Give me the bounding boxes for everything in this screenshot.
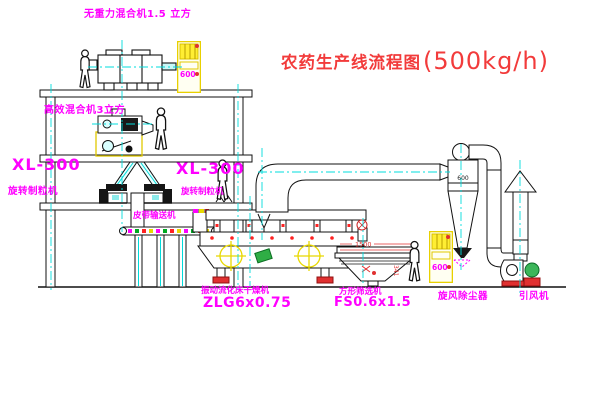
cyclone-diameter-text: 600 [457,175,469,182]
drawing-title: 农药生产线流程图 (500kg/h) [281,47,549,75]
indicator-light-icon [195,44,199,48]
label-granulator-left-model: XL-300 [12,157,81,173]
gravity-free-mixer [88,50,176,90]
sieve-height-dim: 341 [392,265,399,277]
label-mid-mixer: 高效混合机3立方 [44,106,125,116]
granulator-right [144,184,172,203]
label-sieve-model: FS0.6x1.5 [334,296,411,309]
fan-motor-icon [525,263,539,277]
person-icon [80,50,90,88]
label-granulator-left-name: 旋转制粒机 [8,187,58,197]
indicator-light-icon [446,235,450,239]
label-granulator-mid-name: 旋转制粒机 [181,188,224,197]
title-text: 农药生产线流程图 [281,49,421,73]
label-dryer-model: ZLG6x0.75 [203,296,291,310]
cad-drawing-canvas: 600 [0,0,600,403]
indicator-light-icon [447,265,451,269]
person-icon [156,108,167,149]
mixer-3m3 [96,109,153,156]
label-belt-conveyor: 皮带输送机 [133,212,176,221]
label-granulator-mid-model: XL-300 [176,161,245,177]
cabinet2-text: 600 [432,263,448,272]
indicator-light-icon [195,72,199,76]
label-fan: 引风机 [519,292,549,302]
control-cabinet-2: 600 [430,232,453,283]
exhaust-stack [505,171,536,254]
title-capacity: (500kg/h) [423,47,549,75]
cabinet1-text: 600 [180,70,196,79]
granulator-left [99,184,127,203]
label-cyclone: 旋风除尘器 [438,292,488,302]
label-top-mixer: 无重力混合机1.5 立方 [84,10,191,20]
